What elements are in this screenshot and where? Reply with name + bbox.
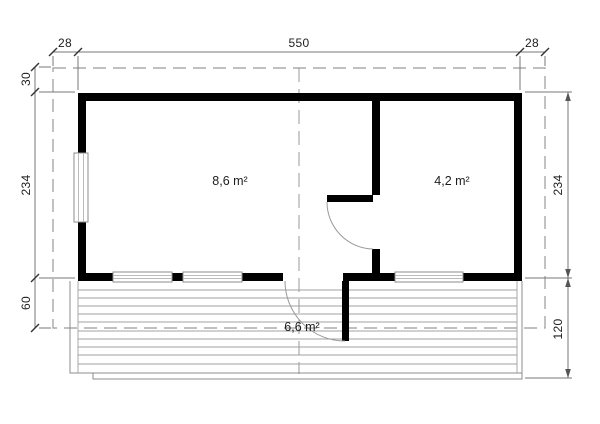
interior-door-leaf	[327, 195, 373, 202]
walls	[78, 93, 522, 341]
exterior-wall-bottom-seg1	[78, 273, 113, 281]
exterior-wall-bottom-seg2	[242, 273, 283, 281]
interior-wall-upper	[372, 101, 380, 195]
terrace-area-label: 6,6 m²	[284, 320, 319, 334]
windows	[74, 153, 463, 282]
dim-top-overhang-right: 28	[525, 36, 539, 50]
exterior-wall-left-lower	[78, 222, 86, 281]
interior-door-swing-arc	[327, 202, 373, 249]
bottom-wall-window-3	[395, 272, 463, 282]
main-room-area-label: 8,6 m²	[212, 174, 247, 188]
floor-plan-drawing	[0, 0, 600, 424]
exterior-wall-bottom-post	[172, 273, 183, 281]
exterior-wall-top	[78, 93, 522, 101]
dim-left-depth: 234	[19, 175, 33, 196]
left-wall-window	[74, 153, 88, 222]
floor-plan: 28 550 28 30 234 60 234 120 8,6 m² 4,2 m…	[0, 0, 600, 424]
bottom-wall-window-1	[113, 272, 172, 282]
side-room-area-label: 4,2 m²	[434, 174, 469, 188]
exterior-wall-right	[514, 93, 522, 281]
dim-left-overhang-top: 30	[19, 72, 33, 86]
dim-top-overhang-left: 28	[58, 36, 72, 50]
bottom-wall-window-2	[183, 272, 242, 282]
dim-right-depth: 234	[551, 175, 565, 196]
dim-right-terrace-depth: 120	[551, 319, 565, 340]
terrace-door-leaf	[342, 281, 349, 341]
dim-left-overhang-bottom: 60	[19, 296, 33, 310]
dim-top-width: 550	[289, 36, 310, 50]
exterior-wall-bottom-seg4	[463, 273, 522, 281]
exterior-wall-bottom-seg3	[343, 273, 395, 281]
interior-wall-lower	[372, 249, 380, 281]
exterior-wall-left-upper	[78, 93, 86, 153]
